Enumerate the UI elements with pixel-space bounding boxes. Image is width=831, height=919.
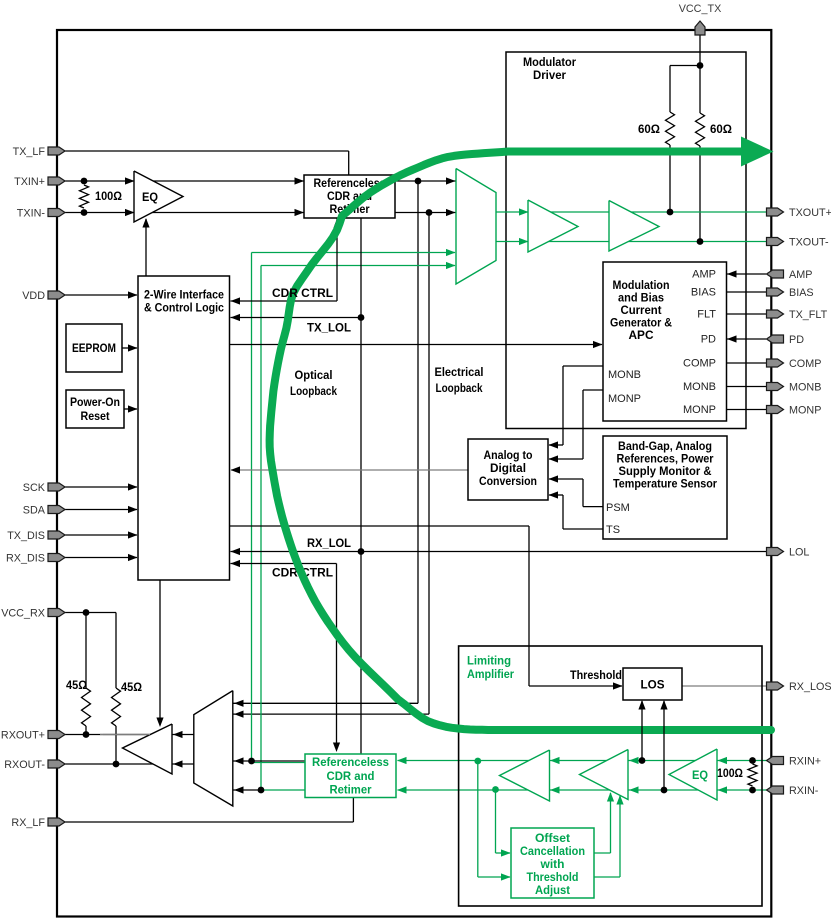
svg-text:PD: PD: [701, 334, 716, 346]
svg-text:CDR CTRL: CDR CTRL: [272, 288, 333, 300]
svg-text:Cancellation: Cancellation: [520, 844, 585, 858]
svg-text:60Ω: 60Ω: [710, 124, 732, 136]
svg-text:Electrical: Electrical: [435, 367, 484, 379]
svg-text:FLT: FLT: [697, 309, 716, 321]
svg-text:CDR and: CDR and: [327, 769, 375, 783]
svg-text:MONB: MONB: [608, 369, 641, 381]
svg-text:TX_FLT: TX_FLT: [789, 309, 828, 321]
svg-text:Amplifier: Amplifier: [467, 667, 514, 681]
svg-text:MONP: MONP: [608, 393, 641, 405]
svg-text:MONB: MONB: [789, 381, 821, 393]
svg-text:Limiting: Limiting: [467, 654, 511, 668]
svg-text:COMP: COMP: [683, 358, 716, 370]
svg-text:RX_LOS: RX_LOS: [789, 681, 831, 693]
svg-text:60Ω: 60Ω: [638, 124, 660, 136]
svg-text:TX_DIS: TX_DIS: [7, 530, 45, 542]
svg-text:Threshold: Threshold: [527, 870, 579, 884]
svg-text:RXOUT-: RXOUT-: [4, 759, 45, 771]
svg-text:45Ω: 45Ω: [66, 680, 87, 692]
svg-text:Conversion: Conversion: [479, 476, 537, 488]
svg-text:VCC_TX: VCC_TX: [679, 3, 722, 15]
svg-text:Analog to: Analog to: [484, 450, 533, 462]
svg-text:PSM: PSM: [606, 502, 630, 514]
svg-text:MONP: MONP: [789, 404, 821, 416]
svg-text:Offset: Offset: [535, 831, 570, 845]
svg-text:Temperature Sensor: Temperature Sensor: [613, 479, 717, 491]
svg-text:RXOUT+: RXOUT+: [1, 729, 45, 741]
svg-text:Loopback: Loopback: [290, 386, 338, 398]
svg-text:Adjust: Adjust: [535, 883, 570, 897]
svg-text:BIAS: BIAS: [789, 287, 814, 299]
svg-text:Driver: Driver: [533, 70, 567, 82]
svg-text:Referenceless: Referenceless: [312, 755, 389, 769]
svg-text:2-Wire Interface: 2-Wire Interface: [144, 290, 224, 302]
svg-text:MONB: MONB: [683, 381, 716, 393]
svg-text:100Ω: 100Ω: [95, 191, 122, 203]
svg-text:BIAS: BIAS: [691, 287, 716, 299]
svg-text:SCK: SCK: [23, 482, 46, 494]
svg-text:TXOUT+: TXOUT+: [789, 207, 831, 219]
svg-text:Threshold: Threshold: [570, 670, 622, 682]
svg-text:Loopback: Loopback: [436, 383, 484, 395]
svg-text:RX_LOL: RX_LOL: [307, 538, 351, 550]
svg-text:LOL: LOL: [789, 546, 809, 558]
svg-text:TXIN-: TXIN-: [17, 207, 46, 219]
svg-text:Optical: Optical: [295, 370, 333, 382]
svg-text:RX_LF: RX_LF: [11, 817, 45, 829]
svg-text:COMP: COMP: [789, 358, 821, 370]
svg-text:AMP: AMP: [692, 269, 716, 281]
svg-text:TX_LOL: TX_LOL: [307, 323, 351, 335]
svg-text:References, Power: References, Power: [617, 454, 714, 466]
svg-text:VCC_RX: VCC_RX: [1, 607, 45, 619]
svg-text:with: with: [540, 857, 565, 871]
svg-text:EEPROM: EEPROM: [72, 343, 116, 355]
svg-text:Retimer: Retimer: [330, 783, 372, 797]
svg-text:SDA: SDA: [23, 504, 46, 516]
svg-text:TX_LF: TX_LF: [13, 146, 46, 158]
svg-text:Digital: Digital: [490, 463, 526, 475]
svg-text:Power-On: Power-On: [70, 397, 120, 409]
svg-text:Generator &: Generator &: [610, 318, 672, 330]
svg-text:RXIN+: RXIN+: [789, 755, 821, 767]
svg-text:100Ω: 100Ω: [717, 768, 743, 780]
svg-text:Supply Monitor &: Supply Monitor &: [619, 466, 712, 478]
svg-text:EQ: EQ: [692, 768, 708, 782]
svg-text:Reset: Reset: [81, 411, 110, 423]
svg-text:Modulation: Modulation: [613, 280, 670, 292]
svg-text:Band-Gap, Analog: Band-Gap, Analog: [618, 441, 712, 453]
svg-text:APC: APC: [629, 330, 654, 342]
svg-text:Current: Current: [621, 305, 662, 317]
svg-text:and Bias: and Bias: [618, 293, 664, 305]
svg-text:TS: TS: [606, 524, 620, 536]
svg-text:EQ: EQ: [142, 192, 158, 204]
svg-text:MONP: MONP: [683, 404, 716, 416]
svg-text:RXIN-: RXIN-: [789, 785, 819, 797]
svg-text:& Control Logic: & Control Logic: [144, 303, 225, 315]
svg-text:VDD: VDD: [22, 290, 45, 302]
svg-text:AMP: AMP: [789, 269, 812, 281]
svg-text:TXOUT-: TXOUT-: [789, 236, 829, 248]
svg-text:LOS: LOS: [641, 680, 665, 692]
svg-text:RX_DIS: RX_DIS: [6, 552, 45, 564]
svg-text:45Ω: 45Ω: [121, 682, 142, 694]
svg-text:PD: PD: [789, 334, 804, 346]
svg-text:TXIN+: TXIN+: [14, 176, 45, 188]
svg-text:Modulator: Modulator: [523, 57, 576, 69]
